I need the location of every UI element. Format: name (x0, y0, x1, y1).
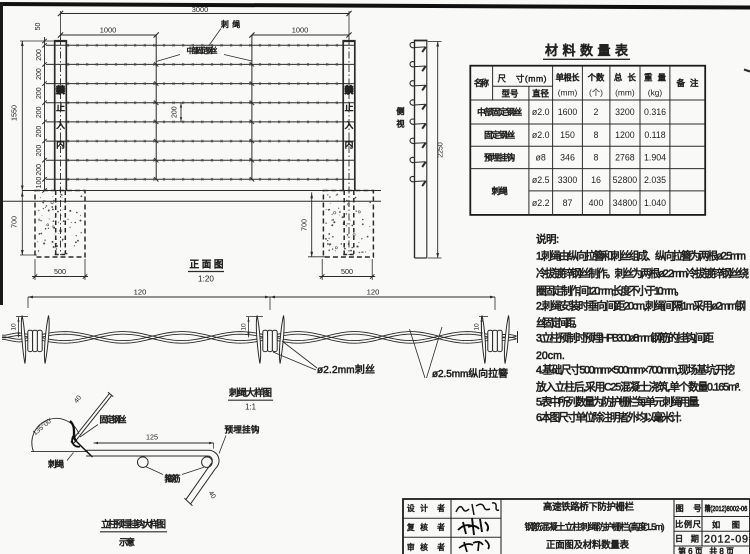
svg-text:禁: 禁 (56, 85, 65, 95)
svg-text:1000: 1000 (100, 26, 116, 35)
svg-text:个数: 个数 (588, 73, 605, 83)
svg-text:2: 2 (594, 107, 599, 117)
svg-text:3200: 3200 (615, 107, 635, 117)
svg-text:1.刺绳由纵向拉簪和刺丝组成、纵向拉簪为两根ø2.5mm: 1.刺绳由纵向拉簪和刺丝组成、纵向拉簪为两根ø2.5mm (536, 250, 746, 263)
svg-text:备 注: 备 注 (677, 77, 699, 88)
svg-text:1000: 1000 (292, 26, 308, 35)
svg-text:8: 8 (594, 130, 599, 140)
svg-text:总 长: 总 长 (614, 73, 637, 83)
svg-text:700: 700 (10, 216, 19, 228)
svg-text:8: 8 (594, 153, 599, 163)
svg-text:中部固定钢丝: 中部固定钢丝 (187, 46, 218, 55)
svg-text:材料数量表: 材料数量表 (545, 43, 628, 58)
svg-text:700: 700 (299, 219, 308, 231)
svg-text:设: 设 (407, 503, 415, 513)
svg-text:200: 200 (36, 87, 43, 99)
svg-text:200: 200 (36, 145, 43, 157)
svg-text:精(2012)8002-06: 精(2012)8002-06 (705, 503, 748, 513)
svg-text:者: 者 (437, 504, 445, 513)
svg-text:立柱预埋挂钩大样图: 立柱预埋挂钩大样图 (101, 519, 166, 530)
svg-text:10: 10 (240, 323, 247, 331)
svg-text:1:1: 1:1 (245, 403, 256, 412)
svg-text:(个): (个) (589, 88, 603, 98)
svg-text:3300: 3300 (558, 175, 578, 185)
svg-text:冷拔镀锌钢丝制作。刺丝为两根ø2.2mm冷拔镀锌钢丝绕: 冷拔镀锌钢丝制作。刺丝为两根ø2.2mm冷拔镀锌钢丝绕 (536, 267, 749, 280)
svg-text:正面图及材料数量表: 正面图及材料数量表 (546, 539, 630, 550)
svg-text:型号: 型号 (502, 89, 519, 99)
svg-text:2.035: 2.035 (644, 175, 666, 185)
svg-text:2250: 2250 (437, 142, 444, 158)
svg-text:示意: 示意 (119, 537, 135, 548)
svg-text:200: 200 (36, 164, 43, 176)
svg-text:10: 10 (10, 323, 17, 331)
svg-text:丝固定间距。: 丝固定间距。 (536, 317, 583, 330)
svg-text:3000: 3000 (192, 5, 208, 14)
svg-text:500: 500 (341, 267, 353, 276)
svg-text:3.立柱预制时预埋HPB300ø8mm钢筋的挂钩,间距: 3.立柱预制时预埋HPB300ø8mm钢筋的挂钩,间距 (536, 332, 714, 345)
svg-text:2012-09: 2012-09 (704, 533, 748, 545)
svg-text:内: 内 (345, 139, 354, 150)
svg-text:50: 50 (35, 23, 42, 31)
svg-text:ø2.0: ø2.0 (532, 107, 550, 117)
svg-text:1:20: 1:20 (198, 275, 214, 284)
svg-text:计: 计 (420, 503, 428, 513)
svg-text:0.316: 0.316 (644, 107, 666, 117)
svg-text:核: 核 (420, 522, 428, 532)
svg-text:刺绳大样图: 刺绳大样图 (229, 387, 272, 398)
svg-text:侧: 侧 (396, 106, 404, 116)
svg-text:5.表中所列数量为防护栅栏每单元刺绳用量.: 5.表中所列数量为防护栅栏每单元刺绳用量. (536, 396, 700, 409)
svg-text:(kg): (kg) (648, 88, 663, 98)
svg-text:34800: 34800 (613, 198, 638, 208)
svg-text:1550: 1550 (10, 105, 19, 121)
svg-text:1200: 1200 (615, 130, 635, 140)
svg-text:346: 346 (560, 153, 575, 163)
svg-text:预埋挂钩: 预埋挂钩 (225, 423, 260, 434)
svg-text:0.118: 0.118 (644, 130, 665, 140)
svg-text:圈固定制作,间120mm,长度不小于10mm。: 圈固定制作,间120mm,长度不小于10mm。 (536, 285, 685, 298)
svg-text:尺 寸(mm): 尺 寸(mm) (498, 73, 547, 84)
svg-text:比例尺: 比例尺 (675, 519, 701, 529)
svg-text:说明:: 说明: (536, 233, 559, 246)
svg-text:名称: 名称 (474, 77, 489, 88)
svg-text:400: 400 (589, 198, 604, 208)
svg-text:120: 120 (134, 287, 147, 296)
svg-text:视: 视 (396, 119, 404, 129)
svg-text:复: 复 (407, 522, 415, 532)
svg-text:1.040: 1.040 (644, 198, 666, 208)
svg-text:者: 者 (437, 523, 445, 532)
svg-text:52800: 52800 (613, 175, 638, 185)
svg-text:放入立柱后,采用C25混凝土浇筑,单个数量0.165m³.: 放入立柱后,采用C25混凝土浇筑,单个数量0.165m³. (536, 381, 741, 394)
svg-text:150: 150 (560, 130, 575, 140)
svg-text:200: 200 (36, 68, 43, 80)
svg-text:审: 审 (407, 542, 415, 552)
svg-text:10: 10 (473, 323, 480, 331)
svg-text:箍筋: 箍筋 (165, 472, 181, 483)
svg-text:1600: 1600 (558, 107, 578, 117)
svg-text:核: 核 (420, 542, 428, 552)
svg-text:ø2.5mm纵向拉簪: ø2.5mm纵向拉簪 (432, 367, 508, 380)
svg-text:ø2.2: ø2.2 (532, 198, 550, 208)
svg-text:(mm): (mm) (615, 88, 635, 98)
svg-text:者: 者 (437, 543, 445, 552)
svg-text:200: 200 (36, 49, 43, 61)
svg-text:正面图: 正面图 (190, 260, 224, 271)
svg-text:中部固定钢丝: 中部固定钢丝 (477, 107, 522, 117)
svg-text:ø8: ø8 (536, 153, 546, 163)
svg-text:预埋挂钩: 预埋挂钩 (484, 153, 515, 163)
svg-text:内: 内 (56, 139, 65, 150)
svg-text:禁: 禁 (345, 85, 354, 95)
svg-text:200: 200 (36, 126, 43, 138)
svg-text:直径: 直径 (532, 89, 549, 99)
svg-text:重 量: 重 量 (644, 73, 666, 83)
svg-text:87: 87 (563, 198, 573, 208)
svg-text:图 号: 图 号 (676, 504, 702, 513)
svg-text:120: 120 (367, 287, 380, 296)
svg-text:16: 16 (591, 175, 601, 185)
svg-text:ø2.2mm刺丝: ø2.2mm刺丝 (317, 364, 375, 376)
svg-text:如 图: 如 图 (712, 520, 740, 530)
svg-text:2.刺绳安装时垂向间距20cm,刺绳间隔1m采用ø2mm钢: 2.刺绳安装时垂向间距20cm,刺绳间隔1m采用ø2mm钢 (536, 300, 746, 313)
svg-text:钢筋混凝土立柱刺绳防护栅栏(高度1.5m): 钢筋混凝土立柱刺绳防护栅栏(高度1.5m) (525, 521, 665, 532)
svg-text:200: 200 (172, 106, 179, 118)
svg-text:1.904: 1.904 (644, 153, 666, 163)
svg-text:4.基础尺寸500mm×500mm×700mm,现场基坑开挖: 4.基础尺寸500mm×500mm×700mm,现场基坑开挖 (536, 364, 735, 377)
svg-text:ø2.5: ø2.5 (532, 175, 550, 185)
svg-text:125: 125 (146, 433, 158, 442)
svg-text:500: 500 (54, 267, 66, 276)
svg-text:2768: 2768 (615, 153, 635, 163)
svg-text:日 期: 日 期 (675, 535, 699, 544)
svg-text:刺绳: 刺绳 (48, 458, 64, 469)
svg-text:单根长: 单根长 (556, 73, 581, 83)
svg-text:固定钢丝: 固定钢丝 (484, 130, 515, 140)
svg-text:200: 200 (36, 106, 43, 118)
svg-text:100: 100 (36, 177, 43, 189)
svg-text:6.本图尺寸单位除注明者外均以毫米计.: 6.本图尺寸单位除注明者外均以毫米计. (536, 411, 682, 424)
svg-text:(mm): (mm) (558, 88, 578, 98)
svg-text:固定钢丝: 固定钢丝 (100, 414, 127, 425)
svg-text:高速铁路桥下防护栅栏: 高速铁路桥下防护栅栏 (543, 501, 634, 512)
svg-text:ø2.0: ø2.0 (532, 130, 550, 140)
svg-text:20cm.: 20cm. (536, 350, 565, 362)
svg-text:刺绳: 刺绳 (492, 186, 509, 196)
